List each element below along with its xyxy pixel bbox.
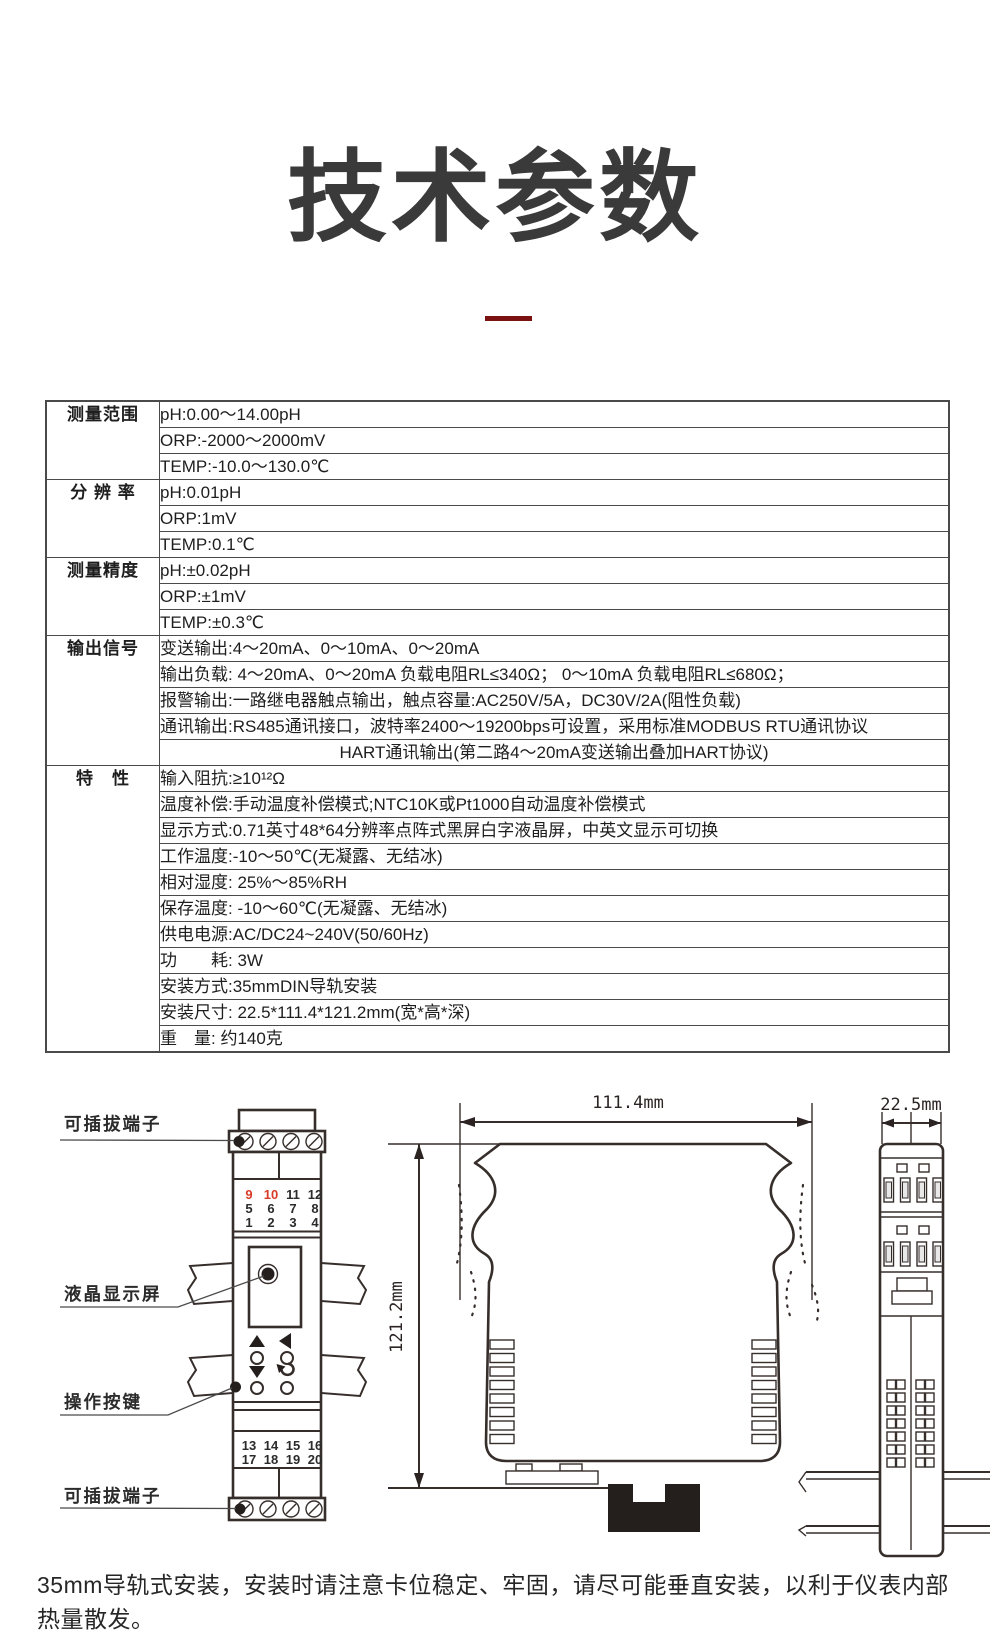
svg-text:11: 11 xyxy=(286,1187,300,1202)
spec-value: 保存温度: -10～60℃(无凝露、无结冰) xyxy=(160,896,950,922)
spec-table-body: 测量范围pH:0.00～14.00pHORP:-2000～2000mVTEMP:… xyxy=(46,401,949,1052)
table-row: 安装方式:35mmDIN导轨安装 xyxy=(46,974,949,1000)
table-row: 相对湿度: 25%～85%RH xyxy=(46,870,949,896)
svg-text:6: 6 xyxy=(267,1201,274,1216)
label-buttons: 操作按键 xyxy=(64,1392,142,1412)
table-row: ORP:±1mV xyxy=(46,584,949,610)
mount-latch-lower xyxy=(892,1291,932,1304)
svg-text:20: 20 xyxy=(308,1452,322,1467)
installation-note: 35mm导轨式安装，安装时请注意卡位稳定、牢固，请尽可能垂直安装，以利于仪表内部… xyxy=(37,1566,967,1634)
label-lcd: 液晶显示屏 xyxy=(64,1284,162,1304)
table-row: 安装尺寸: 22.5*111.4*121.2mm(宽*高*深) xyxy=(46,1000,949,1026)
table-row: 输出信号变送输出:4～20mA、0～10mA、0～20mA xyxy=(46,636,949,662)
spec-value: TEMP:±0.3℃ xyxy=(160,610,950,636)
end-view-drawing: 22.5mm xyxy=(799,1095,990,1556)
vent-grid-right xyxy=(916,1380,934,1467)
table-row: 特 性输入阻抗:≥10¹²Ω xyxy=(46,766,949,792)
spec-value: 输入阻抗:≥10¹²Ω xyxy=(160,766,950,792)
table-row: 重 量: 约140克 xyxy=(46,1026,949,1053)
spec-value: HART通讯输出(第二路4～20mA变送输出叠加HART协议) xyxy=(160,740,950,766)
front-view-drawing: 9 10 11 12 5 6 7 8 1 2 3 4 xyxy=(60,1110,366,1520)
din-rail-section xyxy=(608,1484,700,1532)
svg-text:18: 18 xyxy=(264,1452,278,1467)
spec-group-label: 测量范围 xyxy=(46,401,160,480)
spec-value: 通讯输出:RS485通讯接口，波特率2400～19200bps可设置，采用标准M… xyxy=(160,714,950,740)
svg-text:10: 10 xyxy=(264,1187,278,1202)
spec-value: TEMP:0.1℃ xyxy=(160,532,950,558)
installation-drawings: 9 10 11 12 5 6 7 8 1 2 3 4 xyxy=(0,1060,990,1560)
table-row: 温度补偿:手动温度补偿模式;NTC10K或Pt1000自动温度补偿模式 xyxy=(46,792,949,818)
left-button-icon xyxy=(281,1352,293,1364)
label-bottom-terminal: 可插拔端子 xyxy=(64,1486,162,1506)
svg-text:5: 5 xyxy=(245,1201,252,1216)
table-row: TEMP:0.1℃ xyxy=(46,532,949,558)
svg-text:14: 14 xyxy=(264,1438,279,1453)
svg-text:8: 8 xyxy=(311,1201,318,1216)
table-row: 工作温度:-10～50℃(无凝露、无结冰) xyxy=(46,844,949,870)
spec-value: ORP:-2000～2000mV xyxy=(160,428,950,454)
spec-value: 变送输出:4～20mA、0～10mA、0～20mA xyxy=(160,636,950,662)
svg-text:15: 15 xyxy=(286,1438,300,1453)
table-row: TEMP:-10.0～130.0℃ xyxy=(46,454,949,480)
side-view-drawing: 111.4mm 121.2mm xyxy=(387,1093,818,1532)
svg-text:1: 1 xyxy=(245,1215,252,1230)
svg-text:2: 2 xyxy=(267,1215,274,1230)
table-row: ORP:-2000～2000mV xyxy=(46,428,949,454)
page-title: 技术参数 xyxy=(0,146,990,251)
spec-value: 安装尺寸: 22.5*111.4*121.2mm(宽*高*深) xyxy=(160,1000,950,1026)
spec-value: 安装方式:35mmDIN导轨安装 xyxy=(160,974,950,1000)
lcd-screen xyxy=(249,1247,301,1327)
table-row: 分 辨 率pH:0.01pH xyxy=(46,480,949,506)
spec-value: 重 量: 约140克 xyxy=(160,1026,950,1053)
table-row: 功 耗: 3W xyxy=(46,948,949,974)
up-button-icon xyxy=(251,1352,263,1364)
leader-dot-buttons xyxy=(230,1382,241,1393)
leader-dot-top xyxy=(234,1136,245,1147)
table-row: 通讯输出:RS485通讯接口，波特率2400～19200bps可设置，采用标准M… xyxy=(46,714,949,740)
spec-value: ORP:±1mV xyxy=(160,584,950,610)
spec-value: 显示方式:0.71英寸48*64分辨率点阵式黑屏白字液晶屏，中英文显示可切换 xyxy=(160,818,950,844)
spec-value: 相对湿度: 25%～85%RH xyxy=(160,870,950,896)
leader-dot-bottom xyxy=(235,1504,246,1515)
table-row: 显示方式:0.71英寸48*64分辨率点阵式黑屏白字液晶屏，中英文显示可切换 xyxy=(46,818,949,844)
svg-text:13: 13 xyxy=(242,1438,256,1453)
svg-text:19: 19 xyxy=(286,1452,300,1467)
down-button-icon xyxy=(251,1382,263,1394)
leader-dot-lcd xyxy=(262,1268,275,1281)
page: 技术参数 测量范围pH:0.00～14.00pHORP:-2000～2000mV… xyxy=(0,0,990,1652)
svg-text:7: 7 xyxy=(289,1201,296,1216)
spec-group-label: 输出信号 xyxy=(46,636,160,766)
table-row: HART通讯输出(第二路4～20mA变送输出叠加HART协议) xyxy=(46,740,949,766)
table-row: 输出负载: 4～20mA、0～20mA 负载电阻RL≤340Ω； 0～10mA … xyxy=(46,662,949,688)
spec-value: TEMP:-10.0～130.0℃ xyxy=(160,454,950,480)
spec-value: pH:0.00～14.00pH xyxy=(160,401,950,428)
svg-text:4: 4 xyxy=(311,1215,319,1230)
svg-text:16: 16 xyxy=(308,1438,322,1453)
spec-table: 测量范围pH:0.00～14.00pHORP:-2000～2000mVTEMP:… xyxy=(45,400,950,1053)
module-top-cap xyxy=(239,1110,315,1131)
spec-value: pH:±0.02pH xyxy=(160,558,950,584)
spec-value: ORP:1mV xyxy=(160,506,950,532)
spec-group-label: 分 辨 率 xyxy=(46,480,160,558)
spec-value: 输出负载: 4～20mA、0～20mA 负载电阻RL≤340Ω； 0～10mA … xyxy=(160,662,950,688)
spec-value: 功 耗: 3W xyxy=(160,948,950,974)
module-side-outline xyxy=(472,1144,793,1461)
spec-group-label: 测量精度 xyxy=(46,558,160,636)
vent-grid-left xyxy=(887,1380,905,1467)
table-row: 保存温度: -10～60℃(无凝露、无结冰) xyxy=(46,896,949,922)
table-row: ORP:1mV xyxy=(46,506,949,532)
spec-group-label: 特 性 xyxy=(46,766,160,1053)
table-row: TEMP:±0.3℃ xyxy=(46,610,949,636)
table-row: 测量范围pH:0.00～14.00pH xyxy=(46,401,949,428)
svg-text:12: 12 xyxy=(308,1187,322,1202)
spec-value: pH:0.01pH xyxy=(160,480,950,506)
table-row: 报警输出:一路继电器触点输出，触点容量:AC250V/5A，DC30V/2A(阻… xyxy=(46,688,949,714)
svg-text:17: 17 xyxy=(242,1452,256,1467)
dim-width-label: 111.4mm xyxy=(592,1093,664,1113)
table-row: 测量精度pH:±0.02pH xyxy=(46,558,949,584)
spec-value: 温度补偿:手动温度补偿模式;NTC10K或Pt1000自动温度补偿模式 xyxy=(160,792,950,818)
dim-depth-label: 121.2mm xyxy=(387,1281,407,1353)
spec-value: 工作温度:-10～50℃(无凝露、无结冰) xyxy=(160,844,950,870)
enter-button-icon xyxy=(281,1382,293,1394)
table-row: 供电电源:AC/DC24~240V(50/60Hz) xyxy=(46,922,949,948)
mount-latch-upper xyxy=(897,1278,927,1291)
spec-value: 报警输出:一路继电器触点输出，触点容量:AC250V/5A，DC30V/2A(阻… xyxy=(160,688,950,714)
rail-latch xyxy=(506,1464,598,1484)
title-accent-dash xyxy=(485,316,532,321)
svg-text:3: 3 xyxy=(289,1215,296,1230)
spec-value: 供电电源:AC/DC24~240V(50/60Hz) xyxy=(160,922,950,948)
svg-text:9: 9 xyxy=(245,1187,252,1202)
label-top-terminal: 可插拔端子 xyxy=(64,1114,162,1134)
